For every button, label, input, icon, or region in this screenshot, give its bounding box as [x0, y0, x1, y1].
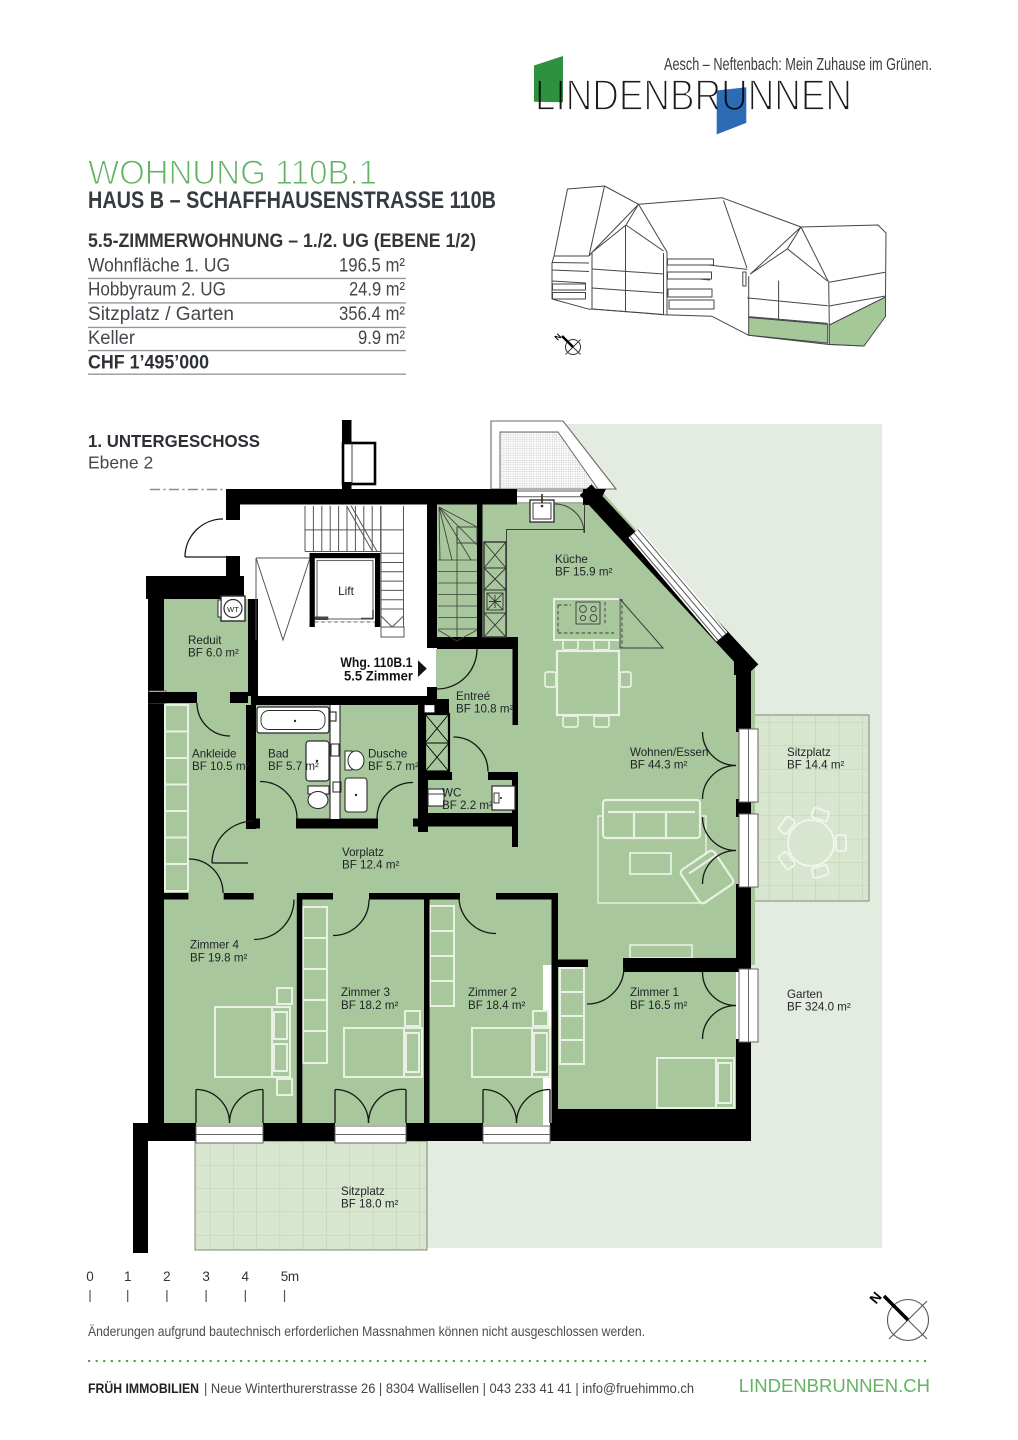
svg-text:BF 14.4 m²: BF 14.4 m² — [787, 759, 844, 772]
svg-text:Wohnen/Essen: Wohnen/Essen — [630, 746, 708, 759]
svg-text:BF 16.5 m²: BF 16.5 m² — [630, 999, 687, 1012]
svg-text:Keller: Keller — [88, 327, 135, 349]
svg-text:BF 2.2 m²: BF 2.2 m² — [442, 799, 493, 812]
svg-text:m: m — [288, 1269, 299, 1284]
svg-text:BF 6.0 m²: BF 6.0 m² — [188, 647, 239, 660]
svg-text:BF 19.8 m²: BF 19.8 m² — [190, 951, 247, 964]
svg-text:3: 3 — [202, 1269, 210, 1284]
svg-text:Zimmer 4: Zimmer 4 — [190, 939, 240, 952]
svg-text:BF 12.4 m²: BF 12.4 m² — [342, 859, 399, 872]
svg-text:HAUS B – SCHAFFHAUSENSTRASSE 1: HAUS B – SCHAFFHAUSENSTRASSE 110B — [88, 187, 496, 214]
svg-text:Garten: Garten — [787, 988, 822, 1001]
svg-text:Küche: Küche — [555, 553, 588, 566]
svg-text:FRÜH IMMOBILIEN: FRÜH IMMOBILIEN — [88, 1380, 199, 1396]
svg-text:Lift: Lift — [338, 584, 354, 598]
svg-text:Vorplatz: Vorplatz — [342, 846, 384, 859]
svg-text:2: 2 — [163, 1269, 171, 1284]
svg-text:0: 0 — [86, 1269, 94, 1284]
svg-text:BF 5.7 m²: BF 5.7 m² — [268, 760, 319, 773]
svg-text:BF 15.9 m²: BF 15.9 m² — [555, 566, 612, 579]
svg-text:BF 324.0 m²: BF 324.0 m² — [787, 1001, 851, 1014]
svg-text:Änderungen aufgrund bautechnis: Änderungen aufgrund bautechnisch erforde… — [88, 1323, 645, 1339]
svg-text:WC: WC — [442, 787, 461, 800]
svg-text:Reduit: Reduit — [188, 634, 222, 647]
svg-text:BF 18.4 m²: BF 18.4 m² — [468, 999, 525, 1012]
svg-text:LINDENBRUNNEN: LINDENBRUNNEN — [535, 71, 852, 120]
svg-text:BF 18.0 m²: BF 18.0 m² — [341, 1198, 398, 1211]
svg-text:BF 5.7 m²: BF 5.7 m² — [368, 760, 419, 773]
svg-text:BF 10.8 m²: BF 10.8 m² — [456, 703, 513, 716]
svg-text:356.4 m²: 356.4 m² — [339, 303, 405, 325]
svg-text:Sitzplatz: Sitzplatz — [787, 746, 831, 759]
svg-text:24.9 m²: 24.9 m² — [349, 279, 405, 301]
svg-text:1. UNTERGESCHOSS: 1. UNTERGESCHOSS — [88, 431, 260, 451]
svg-text:LINDENBRUNNEN.CH: LINDENBRUNNEN.CH — [739, 1375, 930, 1396]
svg-text:Bad: Bad — [268, 748, 289, 761]
svg-text:Sitzplatz / Garten: Sitzplatz / Garten — [88, 303, 234, 325]
svg-text:5.5-ZIMMERWOHNUNG – 1./2. UG (: 5.5-ZIMMERWOHNUNG – 1./2. UG (EBENE 1/2) — [88, 231, 476, 252]
svg-text:Zimmer 3: Zimmer 3 — [341, 986, 390, 999]
svg-text:196.5 m²: 196.5 m² — [339, 255, 405, 277]
svg-text:| Neue Winterthurerstrasse 26: | Neue Winterthurerstrasse 26 | 8304 Wal… — [204, 1380, 694, 1396]
svg-text:Ebene 2: Ebene 2 — [88, 453, 153, 473]
svg-text:Zimmer 1: Zimmer 1 — [630, 986, 679, 999]
svg-text:Dusche: Dusche — [368, 748, 407, 761]
svg-text:Sitzplatz: Sitzplatz — [341, 1185, 385, 1198]
svg-text:4: 4 — [242, 1269, 250, 1284]
svg-text:Ankleide: Ankleide — [192, 748, 236, 761]
svg-text:CHF 1’495’000: CHF 1’495’000 — [88, 352, 209, 374]
svg-text:BF 18.2 m²: BF 18.2 m² — [341, 999, 398, 1012]
svg-text:1: 1 — [124, 1269, 132, 1284]
svg-text:WT: WT — [227, 605, 239, 614]
svg-text:BF 44.3 m²: BF 44.3 m² — [630, 759, 687, 772]
svg-text:Hobbyraum 2. UG: Hobbyraum 2. UG — [88, 279, 226, 301]
svg-text:Entreé: Entreé — [456, 690, 490, 703]
svg-text:5.5 Zimmer: 5.5 Zimmer — [344, 669, 414, 684]
svg-text:Wohnfläche 1. UG: Wohnfläche 1. UG — [88, 255, 230, 277]
svg-text:BF 10.5 m²: BF 10.5 m² — [192, 760, 249, 773]
svg-text:Zimmer 2: Zimmer 2 — [468, 986, 517, 999]
svg-text:9.9 m²: 9.9 m² — [358, 327, 405, 349]
